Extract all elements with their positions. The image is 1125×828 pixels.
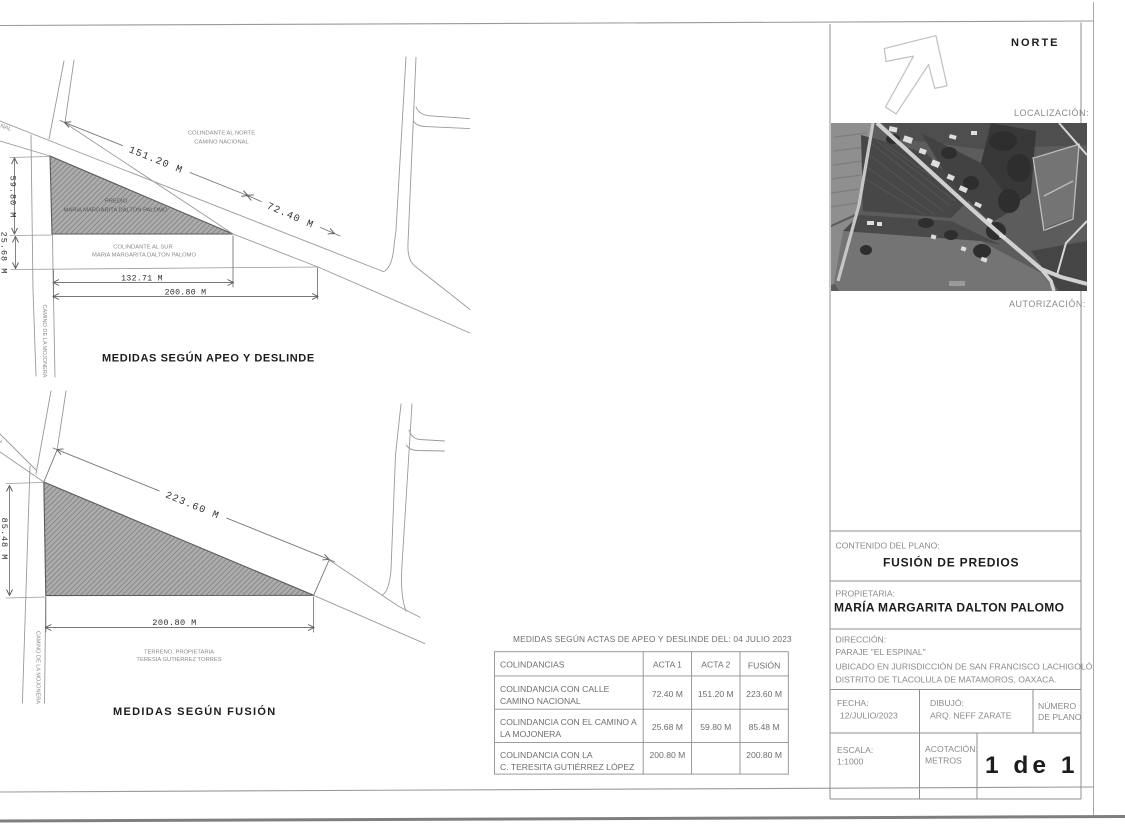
svg-text:PREDIO: PREDIO <box>105 199 128 205</box>
svg-text:TERRENO, PROPIETARIA: TERRENO, PROPIETARIA <box>144 650 214 656</box>
svg-text:LOCALIZACIÓN:: LOCALIZACIÓN: <box>1014 108 1089 118</box>
svg-text:PROPIETARIA:: PROPIETARIA: <box>836 589 896 599</box>
svg-text:DISTRITO DE TLACOLULA DE MATAM: DISTRITO DE TLACOLULA DE MATAMOROS, OAXA… <box>836 675 1057 685</box>
svg-text:COLINDANCIA CON LA: COLINDANCIA CON LA <box>500 750 593 760</box>
svg-text:72.40 M: 72.40 M <box>652 689 683 699</box>
svg-text:AUTORIZACIÓN:: AUTORIZACIÓN: <box>1009 299 1086 309</box>
svg-text:ACTA 1: ACTA 1 <box>653 660 682 670</box>
svg-text:DIBUJÓ:: DIBUJÓ: <box>930 698 964 708</box>
svg-text:MARIA MARGARITA DALTON PALOMO: MARIA MARGARITA DALTON PALOMO <box>64 208 168 214</box>
svg-text:MEDIDAS SEGÚN APEO Y DESLINDE: MEDIDAS SEGÚN APEO Y DESLINDE <box>102 352 315 365</box>
svg-text:COLINDANCIA CON EL CAMINO A: COLINDANCIA CON EL CAMINO A <box>500 717 637 727</box>
svg-text:COLINDANTE AL SUR: COLINDANTE AL SUR <box>113 245 172 251</box>
svg-text:223.60 M: 223.60 M <box>746 689 782 699</box>
svg-text:UBICADO EN JURISDICCIÓN DE SAN: UBICADO EN JURISDICCIÓN DE SAN FRANCISCO… <box>836 662 1093 672</box>
svg-text:59.80 M: 59.80 M <box>700 722 731 732</box>
svg-text:CONTENIDO DEL PLANO:: CONTENIDO DEL PLANO: <box>836 541 940 551</box>
svg-text:200.80 M: 200.80 M <box>649 750 685 760</box>
svg-text:59.80 M: 59.80 M <box>8 176 18 219</box>
svg-text:DIRECCIÓN:: DIRECCIÓN: <box>836 635 887 645</box>
svg-text:12/JULIO/2023: 12/JULIO/2023 <box>840 711 898 721</box>
svg-text:NAL: NAL <box>0 123 13 133</box>
svg-text:CAMINO NACIONAL: CAMINO NACIONAL <box>194 140 249 146</box>
svg-text:85.48 M: 85.48 M <box>0 518 9 561</box>
svg-text:ESCALA:: ESCALA: <box>837 745 873 755</box>
svg-text:COLINDANTE AL NORTE: COLINDANTE AL NORTE <box>188 131 255 137</box>
svg-text:151.20 M: 151.20 M <box>698 689 734 699</box>
svg-text:CAMINO DE LA MOJONERA: CAMINO DE LA MOJONERA <box>41 304 47 377</box>
svg-text:200.80 M: 200.80 M <box>746 750 782 760</box>
svg-text:NORTE: NORTE <box>1011 37 1060 49</box>
svg-text:132.71 M: 132.71 M <box>121 275 163 284</box>
svg-text:ACTA 2: ACTA 2 <box>701 660 730 670</box>
svg-text:ARQ. NEFF ZARATE: ARQ. NEFF ZARATE <box>930 711 1012 721</box>
svg-text:LA MOJONERA: LA MOJONERA <box>500 729 561 739</box>
svg-text:AL: AL <box>0 437 5 446</box>
svg-text:MARIA MARGARITA DALTON PALOMO: MARIA MARGARITA DALTON PALOMO <box>92 253 196 259</box>
svg-text:TERESIA GUTIERREZ TORRES: TERESIA GUTIERREZ TORRES <box>136 657 221 663</box>
svg-text:MEDIDAS SEGÚN ACTAS DE APEO Y: MEDIDAS SEGÚN ACTAS DE APEO Y DESLINDE D… <box>513 634 792 644</box>
svg-text:MEDIDAS SEGÚN FUSIÓN: MEDIDAS SEGÚN FUSIÓN <box>113 705 277 718</box>
svg-text:FECHA:: FECHA: <box>837 698 869 708</box>
svg-text:METROS: METROS <box>925 756 962 766</box>
svg-text:200.80 M: 200.80 M <box>152 618 196 628</box>
svg-text:CAMINO DE LA MOJONERA: CAMINO DE LA MOJONERA <box>35 631 41 704</box>
svg-text:DE PLANO: DE PLANO <box>1038 712 1082 722</box>
svg-text:COLINDANCIAS: COLINDANCIAS <box>500 660 565 670</box>
svg-text:25.68 M: 25.68 M <box>0 232 9 275</box>
svg-text:CAMINO NACIONAL: CAMINO NACIONAL <box>500 696 581 706</box>
svg-text:MARÍA MARGARITA DALTON PALOMO: MARÍA MARGARITA DALTON PALOMO <box>834 600 1064 615</box>
svg-text:FUSIÓN DE PREDIOS: FUSIÓN DE PREDIOS <box>883 555 1019 570</box>
svg-text:COLINDANCIA CON CALLE: COLINDANCIA CON CALLE <box>500 684 610 694</box>
svg-text:200.80 M: 200.80 M <box>165 289 207 298</box>
svg-text:85.48 M: 85.48 M <box>749 722 780 732</box>
svg-text:PARAJE "EL ESPINAL": PARAJE "EL ESPINAL" <box>836 647 926 657</box>
svg-text:NÚMERO: NÚMERO <box>1038 701 1077 711</box>
svg-text:C. TERESITA GUTIÉRREZ LÓPEZ: C. TERESITA GUTIÉRREZ LÓPEZ <box>500 762 634 772</box>
svg-text:1 de 1: 1 de 1 <box>985 752 1078 779</box>
svg-text:1:1000: 1:1000 <box>837 757 864 767</box>
svg-text:ACOTACIÓN:: ACOTACIÓN: <box>925 744 978 754</box>
svg-text:25.68 M: 25.68 M <box>652 722 683 732</box>
svg-text:FUSIÓN: FUSIÓN <box>748 661 780 671</box>
